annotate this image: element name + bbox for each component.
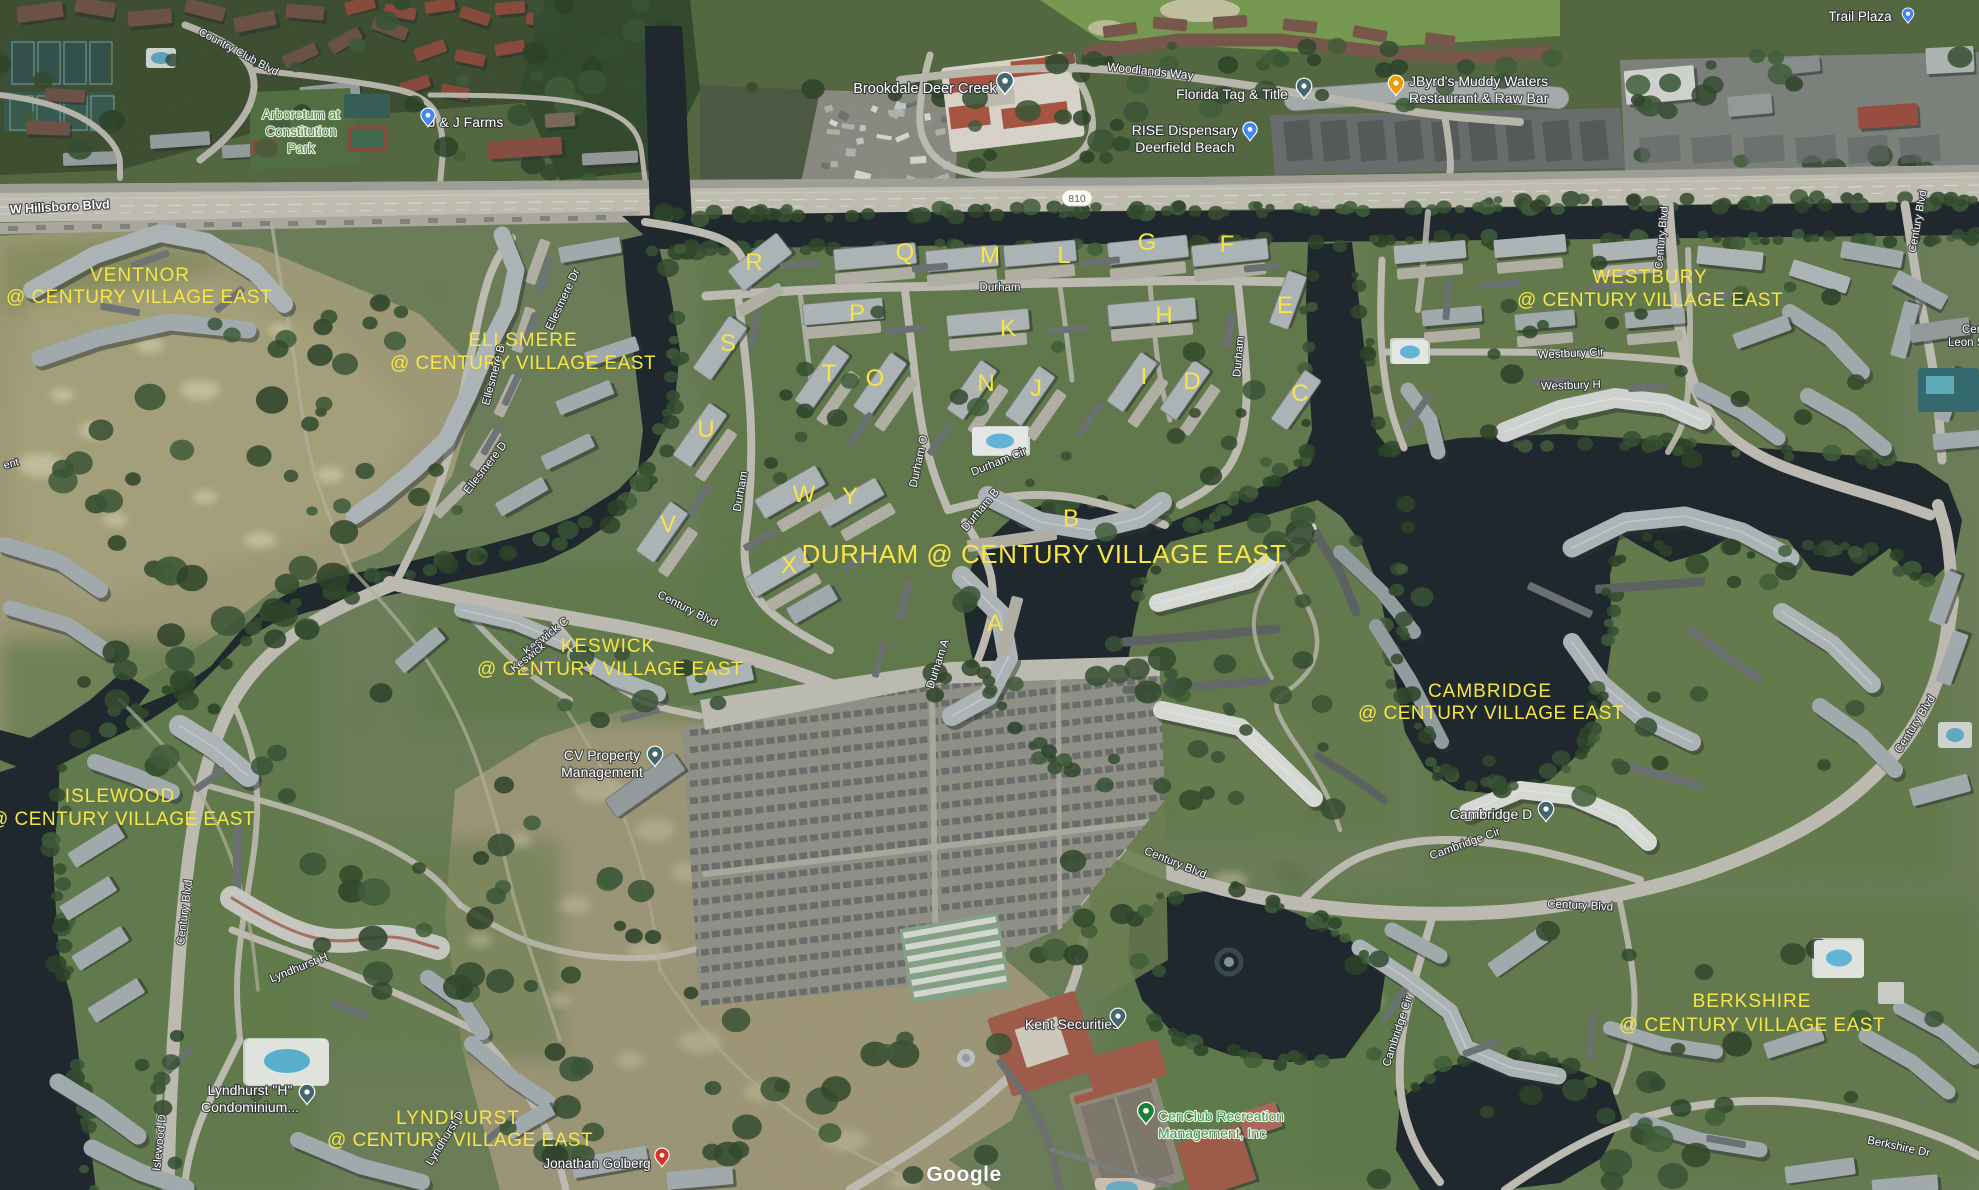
svg-text:Deerfield Beach: Deerfield Beach <box>1135 139 1235 155</box>
svg-text:A: A <box>987 610 1003 637</box>
svg-text:D: D <box>1183 368 1200 395</box>
svg-text:Brookdale Deer Creek: Brookdale Deer Creek <box>853 81 997 97</box>
svg-text:N: N <box>977 370 994 397</box>
svg-text:Cent: Cent <box>1962 324 1979 336</box>
svg-text:T: T <box>822 360 837 387</box>
svg-text:F: F <box>1220 231 1235 258</box>
svg-text:Lyndhurst "H": Lyndhurst "H" <box>208 1082 293 1098</box>
svg-text:@ CENTURY VILLAGE EAST: @ CENTURY VILLAGE EAST <box>6 287 272 308</box>
svg-text:I: I <box>1141 363 1148 390</box>
svg-text:@ CENTURY VILLAGE EAST: @ CENTURY VILLAGE EAST <box>0 809 255 830</box>
svg-text:Cambridge D: Cambridge D <box>1450 806 1532 822</box>
svg-text:U: U <box>697 416 714 443</box>
svg-text:@ CENTURY VILLAGE EAST: @ CENTURY VILLAGE EAST <box>327 1130 593 1151</box>
svg-text:Management: Management <box>561 764 643 780</box>
svg-text:Management, Inc: Management, Inc <box>1158 1125 1266 1141</box>
svg-text:L: L <box>1057 242 1070 269</box>
svg-text:E: E <box>1277 292 1293 319</box>
svg-text:Restaurant & Raw Bar: Restaurant & Raw Bar <box>1409 90 1549 106</box>
svg-text:Y: Y <box>842 483 858 510</box>
svg-text:Westbury H: Westbury H <box>1541 379 1601 393</box>
svg-text:Park: Park <box>287 141 315 156</box>
svg-text:KESWICK: KESWICK <box>561 636 656 657</box>
svg-text:Kent Securities: Kent Securities <box>1025 1016 1119 1032</box>
svg-text:V: V <box>660 511 676 538</box>
svg-text:C: C <box>1291 380 1308 407</box>
svg-text:Condominium...: Condominium... <box>201 1099 299 1115</box>
svg-text:Leon Sla: Leon Sla <box>1948 337 1979 349</box>
svg-text:B: B <box>1063 505 1079 532</box>
svg-text:Durham: Durham <box>980 282 1021 294</box>
svg-text:Jonathan Golberg: Jonathan Golberg <box>543 1156 650 1171</box>
svg-text:Q: Q <box>896 239 915 266</box>
svg-text:G: G <box>1138 229 1157 256</box>
svg-text:810: 810 <box>1068 193 1086 205</box>
svg-text:CV Property: CV Property <box>564 747 640 763</box>
svg-text:CAMBRIDGE: CAMBRIDGE <box>1428 681 1552 702</box>
svg-text:Google: Google <box>926 1163 1001 1186</box>
svg-text:M: M <box>980 242 1000 269</box>
svg-text:Florida Tag & Title: Florida Tag & Title <box>1176 86 1288 102</box>
svg-text:WESTBURY: WESTBURY <box>1592 267 1707 288</box>
svg-text:@ CENTURY VILLAGE EAST: @ CENTURY VILLAGE EAST <box>390 353 656 374</box>
svg-text:@ CENTURY VILLAGE EAST: @ CENTURY VILLAGE EAST <box>1358 703 1624 724</box>
svg-text:H: H <box>1155 302 1172 329</box>
svg-text:JByrd's Muddy Waters: JByrd's Muddy Waters <box>1409 73 1548 89</box>
svg-text:Constitution: Constitution <box>265 124 336 139</box>
svg-text:BERKSHIRE: BERKSHIRE <box>1693 991 1812 1012</box>
svg-text:K: K <box>1000 315 1016 342</box>
svg-text:VENTNOR: VENTNOR <box>90 265 190 286</box>
svg-text:CenClub Recreation: CenClub Recreation <box>1158 1108 1284 1124</box>
svg-text:W: W <box>793 481 816 508</box>
svg-text:@ CENTURY VILLAGE EAST: @ CENTURY VILLAGE EAST <box>1517 290 1783 311</box>
svg-text:S: S <box>720 330 736 357</box>
svg-text:R: R <box>745 249 762 276</box>
svg-text:Trail Plaza: Trail Plaza <box>1828 9 1892 24</box>
svg-text:ISLEWOOD: ISLEWOOD <box>65 786 175 807</box>
svg-text:Arboretum at: Arboretum at <box>262 107 340 122</box>
svg-text:X: X <box>781 552 797 579</box>
svg-text:J & J Farms: J & J Farms <box>429 114 504 130</box>
svg-text:O: O <box>866 365 885 392</box>
svg-text:P: P <box>849 300 865 327</box>
svg-text:RISE Dispensary: RISE Dispensary <box>1132 122 1239 138</box>
svg-text:@ CENTURY VILLAGE EAST: @ CENTURY VILLAGE EAST <box>1619 1015 1885 1036</box>
svg-text:DURHAM @ CENTURY VILLAGE EAST: DURHAM @ CENTURY VILLAGE EAST <box>802 539 1287 569</box>
svg-text:ELLSMERE: ELLSMERE <box>468 330 577 351</box>
svg-text:J: J <box>1030 375 1042 402</box>
